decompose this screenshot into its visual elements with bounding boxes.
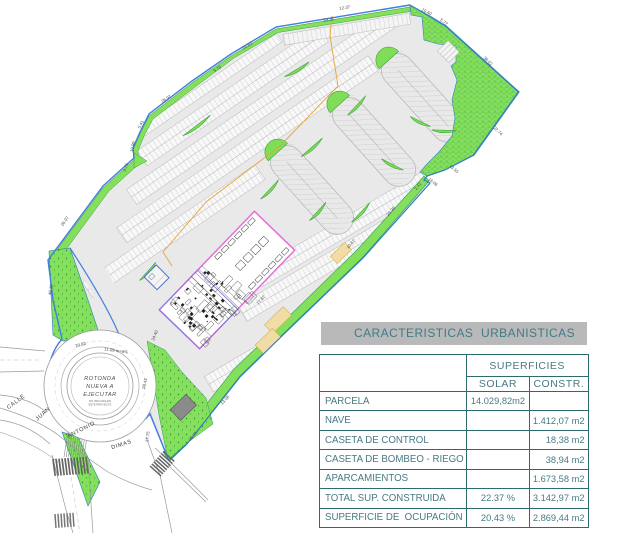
- svg-text:NUEVA A: NUEVA A: [86, 384, 114, 390]
- svg-text:NO INCLUIDA EN: NO INCLUIDA EN: [89, 399, 111, 403]
- svg-text:JUAN: JUAN: [35, 406, 52, 422]
- svg-text:17.75: 17.75: [144, 431, 151, 443]
- svg-text:26.07: 26.07: [60, 215, 71, 227]
- svg-text:ESTE PROYECTO: ESTE PROYECTO: [89, 403, 112, 407]
- svg-text:DIMAS: DIMAS: [111, 439, 133, 451]
- svg-text:EJECUTAR: EJECUTAR: [83, 392, 117, 398]
- svg-text:12.37: 12.37: [339, 4, 351, 11]
- svg-text:22.74: 22.74: [492, 125, 504, 136]
- svg-text:ROTONDA: ROTONDA: [84, 376, 116, 382]
- svg-text:13.55: 13.55: [448, 163, 460, 174]
